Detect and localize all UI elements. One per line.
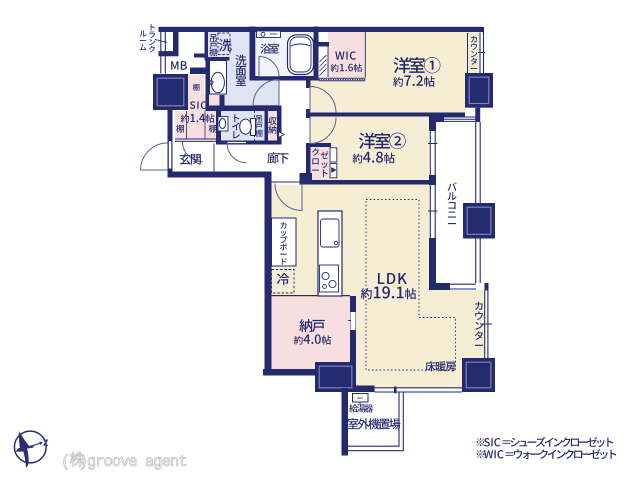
svg-text:(: ( — [61, 453, 69, 471]
svg-text:)groove agent: )groove agent — [79, 453, 187, 471]
